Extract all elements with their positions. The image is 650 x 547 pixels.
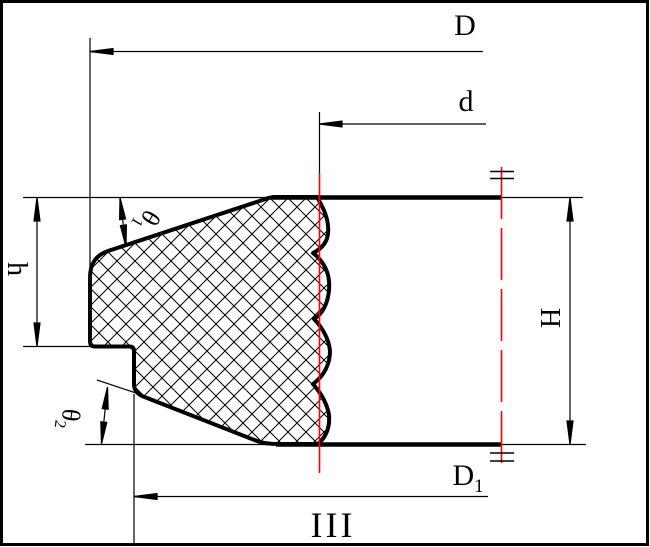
section-label-text: III — [311, 505, 356, 545]
dim-label-outer-diameter-text: D — [454, 9, 476, 42]
section-label: III — [311, 507, 356, 543]
drawing-geometry — [0, 0, 650, 547]
dim-label-bottom-diameter: D1 — [453, 461, 484, 491]
dim-label-total-height: H — [535, 308, 563, 328]
dim-label-bottom-diameter-text: D — [453, 459, 475, 492]
angle-label-theta2: θ2 — [56, 407, 84, 431]
dim-label-outer-diameter: D — [454, 11, 476, 41]
dim-label-flange-height: h — [2, 262, 30, 276]
dim-label-inner-diameter-text: d — [459, 85, 474, 118]
dim-label-inner-diameter: d — [459, 87, 474, 117]
technical-drawing-canvas: D d D1 H h θ1 θ2 III — [0, 0, 650, 547]
dim-label-flange-height-text: h — [1, 262, 32, 276]
dim-label-bottom-diameter-subscript: 1 — [474, 476, 483, 497]
dim-label-total-height-text: H — [534, 308, 565, 328]
